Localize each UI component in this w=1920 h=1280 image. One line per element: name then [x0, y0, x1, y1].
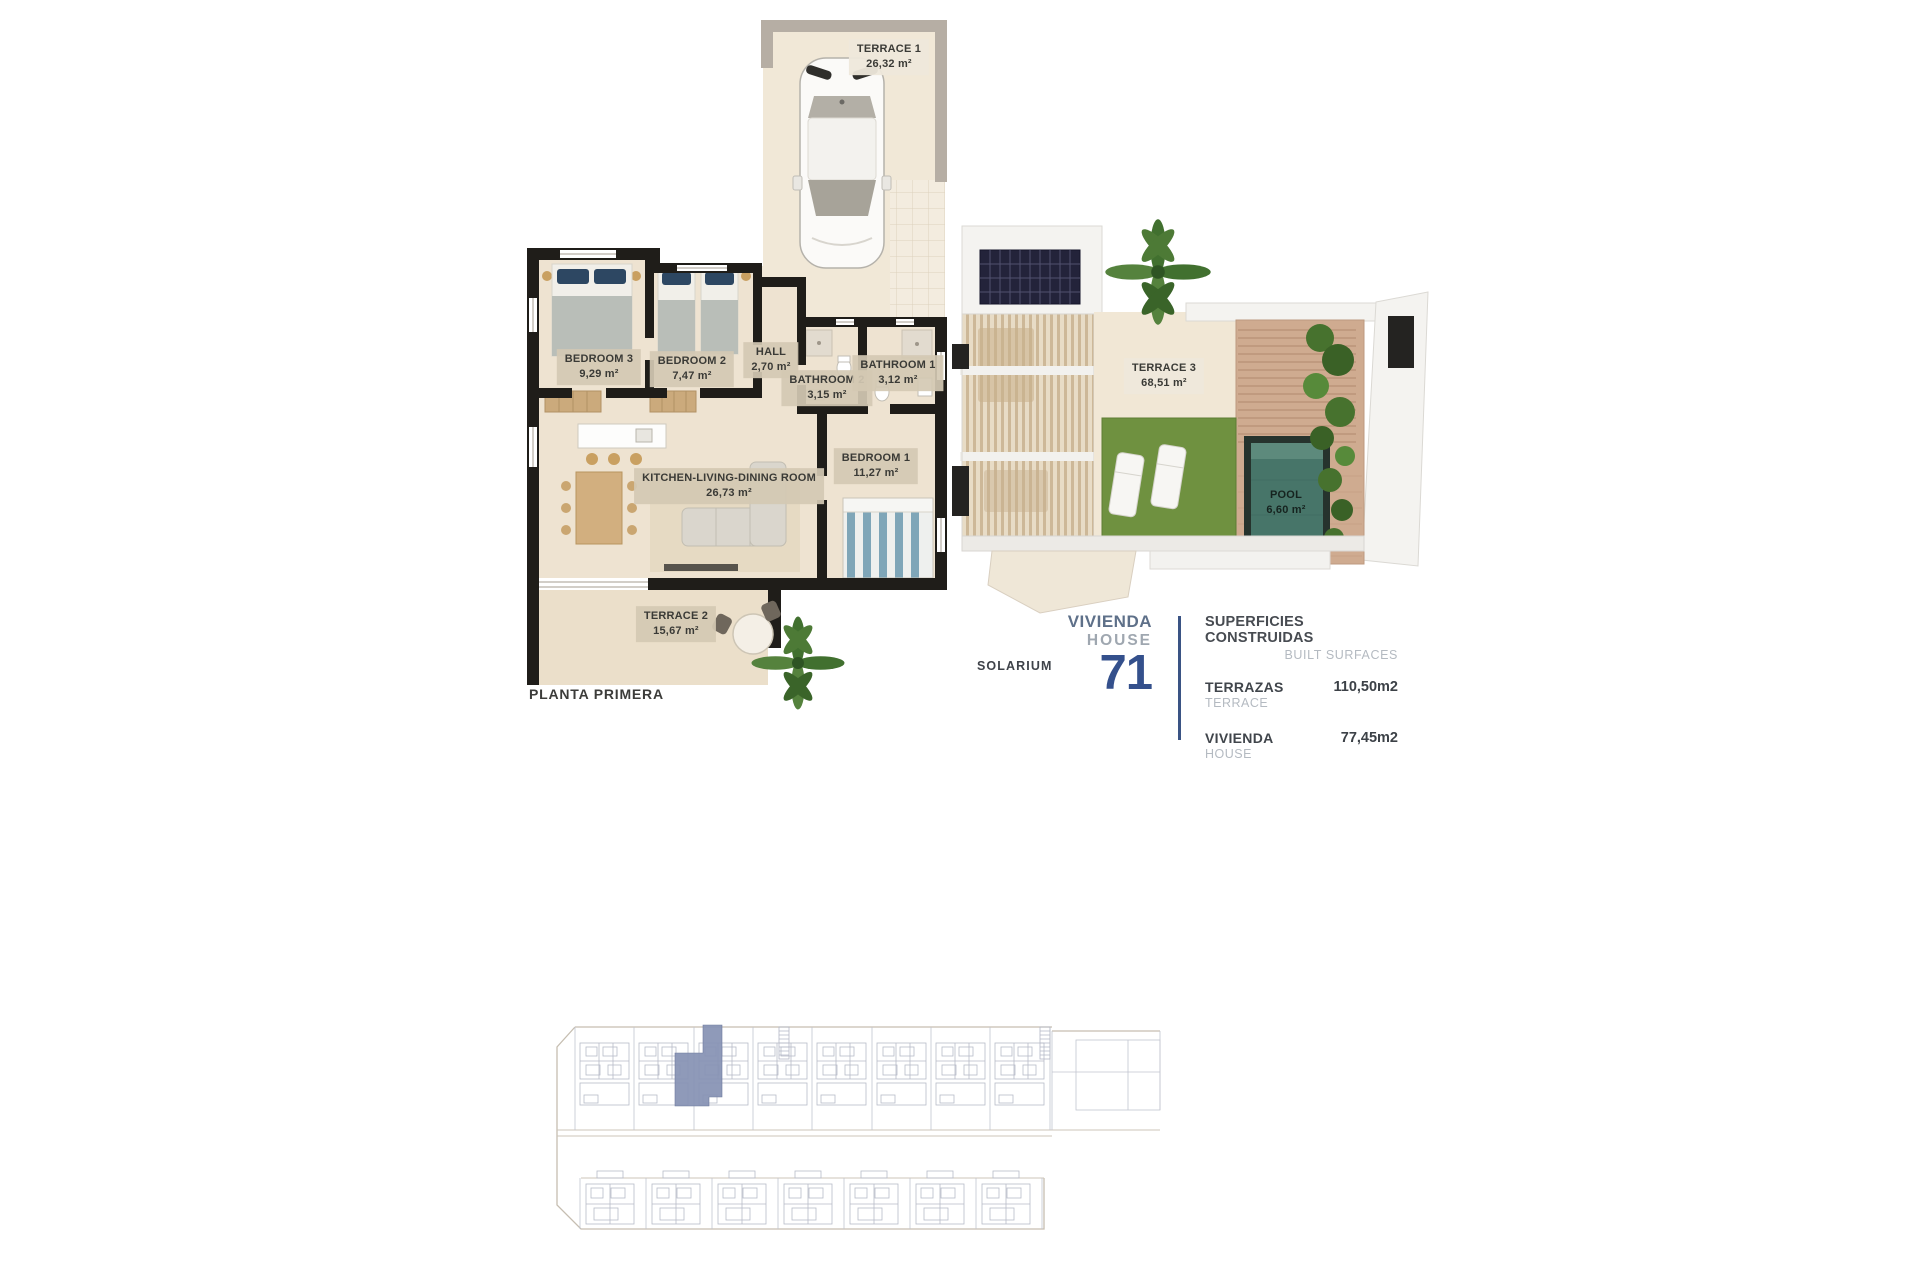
room-name: TERRACE 3	[1132, 362, 1196, 374]
first-floor-title: PLANTA PRIMERA	[529, 686, 664, 702]
planter-box	[952, 344, 969, 369]
room-name: TERRACE 1	[857, 43, 921, 55]
surface-label-es: TERRAZAS	[1205, 679, 1284, 695]
planter-box	[952, 466, 969, 516]
room-name: BEDROOM 1	[842, 452, 910, 464]
room-name: BEDROOM 3	[565, 353, 633, 365]
site-unit	[817, 1043, 866, 1105]
site-unit	[580, 1043, 629, 1105]
planter-box	[1388, 316, 1414, 368]
site-unit	[995, 1043, 1044, 1105]
room-label-terrace2: TERRACE 2 15,67 m²	[636, 606, 716, 642]
room-area: 26,32 m²	[857, 57, 921, 72]
room-label-bedroom3: BEDROOM 3 9,29 m²	[557, 349, 641, 385]
room-area: 3,12 m²	[860, 373, 935, 388]
site-unit	[850, 1171, 898, 1224]
room-area: 15,67 m²	[644, 624, 708, 639]
site-unit	[982, 1171, 1030, 1224]
room-label-bedroom1: BEDROOM 1 11,27 m²	[834, 448, 918, 484]
surface-row-terrazas: TERRAZAS TERRACE 110,50m2	[1205, 679, 1398, 710]
highlighted-unit-71	[675, 1025, 722, 1106]
solarium-plan	[952, 219, 1428, 613]
unit-id-block: VIVIENDA HOUSE 71	[1010, 613, 1152, 696]
room-label-bedroom2: BEDROOM 2 7,47 m²	[650, 351, 734, 387]
room-name: BATHROOM 1	[860, 359, 935, 371]
site-plan	[557, 1025, 1160, 1229]
room-label-pool: POOL 6,60 m²	[1258, 485, 1313, 521]
room-area: 26,73 m²	[642, 486, 816, 501]
room-label-kitchen-living: KITCHEN-LIVING-DINING ROOM 26,73 m²	[634, 468, 824, 504]
surfaces-title-en: BUILT SURFACES	[1205, 648, 1398, 662]
site-unit	[652, 1171, 700, 1224]
room-area: 9,29 m²	[565, 367, 633, 382]
site-unit	[718, 1171, 766, 1224]
room-name: HALL	[756, 346, 786, 358]
site-unit	[936, 1043, 985, 1105]
room-name: KITCHEN-LIVING-DINING ROOM	[642, 472, 816, 484]
room-label-terrace3: TERRACE 3 68,51 m²	[1124, 358, 1204, 394]
surface-value: 77,45m2	[1341, 730, 1398, 746]
room-area: 6,60 m²	[1266, 503, 1305, 518]
surface-value: 110,50m2	[1333, 679, 1398, 695]
plans-graphic	[0, 0, 1920, 1280]
room-area: 68,51 m²	[1132, 376, 1196, 391]
unit-name-es: VIVIENDA	[1010, 613, 1152, 631]
site-unit	[784, 1171, 832, 1224]
site-right-block	[1052, 1031, 1160, 1130]
surface-label-en: TERRACE	[1205, 696, 1284, 710]
surface-row-vivienda: VIVIENDA HOUSE 77,45m2	[1205, 730, 1398, 761]
room-name: TERRACE 2	[644, 610, 708, 622]
surface-label-es: VIVIENDA	[1205, 730, 1274, 746]
unit-number: 71	[1010, 651, 1152, 696]
surfaces-title-es: SUPERFICIES CONSTRUIDAS	[1205, 614, 1398, 646]
solar-panel-icon	[980, 250, 1080, 304]
room-area: 11,27 m²	[842, 466, 910, 481]
site-unit	[916, 1171, 964, 1224]
room-label-terrace1: TERRACE 1 26,32 m²	[849, 39, 929, 75]
site-unit	[758, 1043, 807, 1105]
floorplan-sheet: TERRACE 1 26,32 m² BEDROOM 3 9,29 m² BED…	[0, 0, 1920, 1280]
site-unit	[877, 1043, 926, 1105]
room-area: 7,47 m²	[658, 369, 726, 384]
built-surfaces-block: SUPERFICIES CONSTRUIDAS BUILT SURFACES T…	[1205, 614, 1398, 761]
info-divider	[1178, 616, 1181, 740]
site-unit	[586, 1171, 634, 1224]
room-name: POOL	[1270, 489, 1302, 501]
room-label-bathroom1: BATHROOM 1 3,12 m²	[852, 355, 943, 391]
surface-label-en: HOUSE	[1205, 747, 1274, 761]
car-icon	[793, 58, 891, 268]
room-name: BEDROOM 2	[658, 355, 726, 367]
